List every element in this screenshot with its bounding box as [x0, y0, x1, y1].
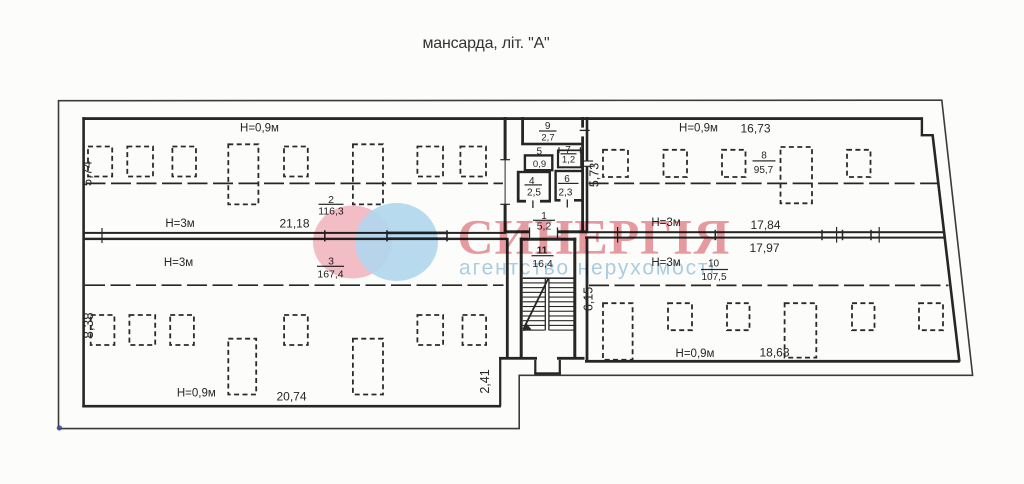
svg-text:8,38: 8,38 [81, 312, 96, 338]
svg-text:2,5: 2,5 [527, 187, 541, 198]
svg-text:0,9: 0,9 [533, 159, 546, 170]
svg-text:18,68: 18,68 [759, 345, 789, 359]
svg-text:21,18: 21,18 [279, 217, 309, 231]
svg-text:17,84: 17,84 [750, 218, 780, 232]
svg-text:9: 9 [545, 121, 551, 132]
svg-text:2,3: 2,3 [559, 187, 573, 198]
svg-text:H=0,9м: H=0,9м [177, 387, 216, 399]
svg-text:8: 8 [761, 150, 767, 161]
svg-text:5,74: 5,74 [80, 161, 95, 186]
svg-text:H=3м: H=3м [165, 218, 194, 230]
svg-text:1,2: 1,2 [562, 155, 575, 166]
svg-text:2,7: 2,7 [541, 132, 554, 143]
svg-text:H=0,9м: H=0,9м [676, 348, 715, 360]
svg-text:5: 5 [537, 146, 543, 157]
svg-text:2,41: 2,41 [478, 369, 492, 393]
svg-text:агентство нерухомості: агентство нерухомості [459, 257, 716, 280]
svg-text:мансарда, літ. "А": мансарда, літ. "А" [422, 35, 549, 52]
svg-text:5,73: 5,73 [588, 163, 602, 187]
svg-text:20,74: 20,74 [276, 389, 306, 403]
svg-text:H=0,9м: H=0,9м [679, 122, 718, 134]
svg-text:H=0,9м: H=0,9м [240, 122, 279, 134]
svg-text:6,15: 6,15 [582, 287, 596, 311]
svg-text:17,97: 17,97 [749, 241, 779, 255]
svg-text:H=3м: H=3м [164, 257, 193, 269]
svg-text:16,73: 16,73 [740, 121, 770, 135]
svg-text:95,7: 95,7 [754, 165, 774, 176]
